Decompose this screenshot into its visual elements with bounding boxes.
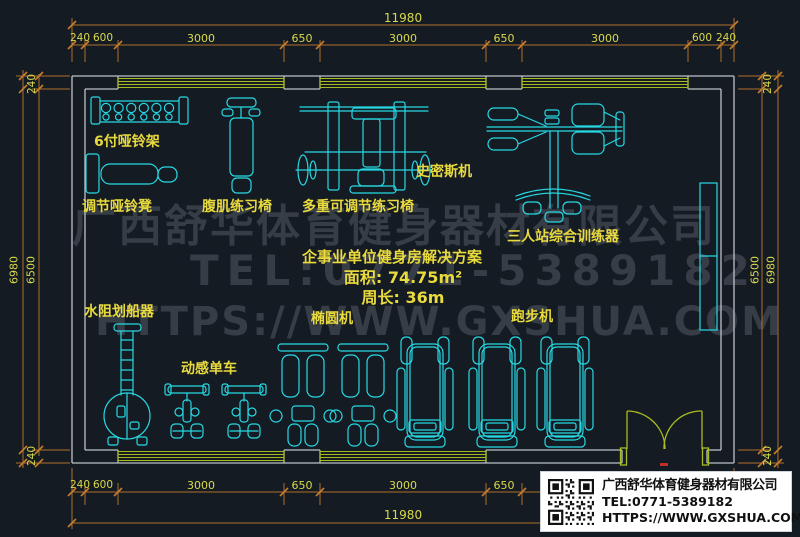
smith-machine-drawing [296,102,432,193]
three-station-trainer-drawing [487,104,624,222]
label-adjustable-dumbbell-bench: 调节哑铃凳 [82,196,152,216]
dim-right-240-top: 240 [762,74,774,94]
window-band-bottom [118,451,486,462]
title-block-url: HTTPS://WWW.GXSHUA.COM [602,510,800,526]
cad-floorplan-canvas: 广西舒华体育健身器材有限公司 TEL:0771-5389182 HTTPS://… [0,0,800,537]
dim-bottom-total: 11980 [384,508,422,522]
dim-left-240-bottom: 240 [26,446,38,466]
label-rowing-machine: 水阻划船器 [84,301,154,321]
plan-perimeter: 周长: 36m [330,284,476,308]
treadmill-2-drawing [469,337,525,447]
dim-top-seg: 240 [716,32,736,44]
label-ab-bench: 腹肌练习椅 [202,196,272,216]
dim-top-seg: 3000 [389,32,417,45]
dim-top-seg: 240 [70,32,90,44]
label-smith-machine: 史密斯机 [416,161,472,181]
dim-bottom-seg: 3000 [187,479,215,492]
dim-top-seg: 650 [494,32,515,45]
window-band-top [118,78,688,89]
spin-bike-1-drawing [165,384,209,438]
title-block-company: 广西舒华体育健身器材有限公司 [602,478,800,494]
dim-left-outer: 6980 [8,256,21,284]
dim-right-inner: 6500 [749,256,762,284]
elliptical-1-drawing [270,344,336,446]
dim-top-seg: 600 [93,32,113,44]
label-treadmill: 跑步机 [511,306,553,326]
ab-bench-drawing [222,98,260,193]
label-dumbbell-rack: 6付哑铃架 [94,131,160,151]
dim-bottom-seg: 600 [93,479,113,491]
door-threshold-mark [660,463,668,466]
wall-mirror-drawing [700,183,717,330]
label-multi-adjustable-bench: 多重可调节练习椅 [302,196,414,216]
dim-bottom-seg: 3000 [389,479,417,492]
dim-top-seg: 3000 [187,32,215,45]
dim-bottom-seg: 240 [70,479,90,491]
dim-top-seg: 600 [692,32,712,44]
elliptical-2-drawing [330,344,396,446]
label-spin-bike: 动感单车 [181,358,237,378]
qr-code [548,479,594,525]
adjustable-dumbbell-bench-drawing [86,154,177,193]
title-block: 广西舒华体育健身器材有限公司 TEL:0771-5389182 HTTPS://… [540,471,792,532]
dim-top-seg: 3000 [591,32,619,45]
dumbbell-rack-drawing [91,97,188,124]
treadmill-3-drawing [537,337,593,447]
dim-top-seg: 650 [292,32,313,45]
rowing-machine-drawing [104,324,150,445]
dim-left-240-top: 240 [26,74,38,94]
dim-top-total: 11980 [384,11,422,25]
double-door [621,411,709,465]
label-elliptical: 椭圆机 [311,308,353,328]
dim-bottom-seg: 650 [494,479,515,492]
dim-left-inner: 6500 [25,256,38,284]
label-three-station-trainer: 三人站综合训练器 [507,226,619,246]
dim-bottom-seg: 650 [292,479,313,492]
title-block-tel: TEL:0771-5389182 [602,494,800,510]
dim-right-outer: 6980 [765,256,778,284]
spin-bike-2-drawing [222,384,266,438]
dim-right-240-bottom: 240 [762,446,774,466]
treadmill-1-drawing [397,337,453,447]
